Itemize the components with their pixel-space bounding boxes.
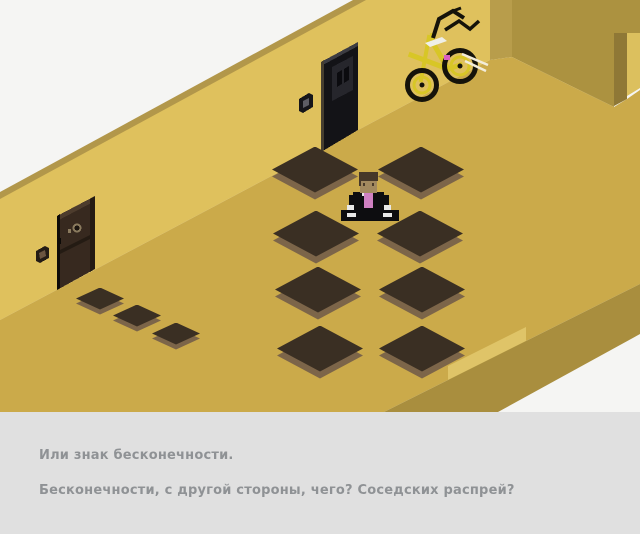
floor-tile xyxy=(275,267,361,320)
door-middle-slit-right xyxy=(344,66,349,83)
door-left-dot xyxy=(68,229,71,233)
character-shoe-right xyxy=(383,213,392,217)
player-character[interactable] xyxy=(337,168,407,228)
dialogue-panel: Или знак бесконечности. Бесконечности, с… xyxy=(0,412,640,534)
character-hand-right xyxy=(384,205,391,210)
bike-handlebar xyxy=(433,8,479,38)
floor-tile xyxy=(379,267,465,320)
character-hair xyxy=(359,172,378,181)
door-left-right-jamb xyxy=(90,196,95,272)
bike-reflector xyxy=(444,55,450,60)
character-eye-left xyxy=(363,183,365,186)
dialogue-line-2: Бесконечности, с другой стороны, чего? С… xyxy=(39,483,515,498)
character-eye-right xyxy=(372,183,374,186)
wall-switch-left[interactable] xyxy=(36,246,49,263)
door-middle-slit-left xyxy=(337,70,342,87)
game-viewport xyxy=(0,0,640,412)
door-middle-left-edge xyxy=(321,60,324,152)
floor-tile xyxy=(379,326,465,379)
door-left[interactable] xyxy=(54,193,100,293)
wall-switch-middle[interactable] xyxy=(299,93,313,113)
character-collar xyxy=(362,193,364,196)
character-hair-side xyxy=(359,181,361,186)
door-left-left-edge xyxy=(57,214,60,290)
character-shoe-left xyxy=(347,213,356,217)
door-middle[interactable] xyxy=(318,40,360,152)
door-left-handle xyxy=(58,238,61,244)
floor-tile xyxy=(277,326,363,379)
bicycle[interactable] xyxy=(400,6,505,108)
door-left-peephole xyxy=(74,225,81,232)
game-window: Или знак бесконечности. Бесконечности, с… xyxy=(0,0,640,534)
character-hand-left xyxy=(347,205,354,210)
dialogue-line-1: Или знак бесконечности. xyxy=(39,448,234,463)
character-shirt xyxy=(364,193,373,208)
door-mat xyxy=(152,323,200,350)
